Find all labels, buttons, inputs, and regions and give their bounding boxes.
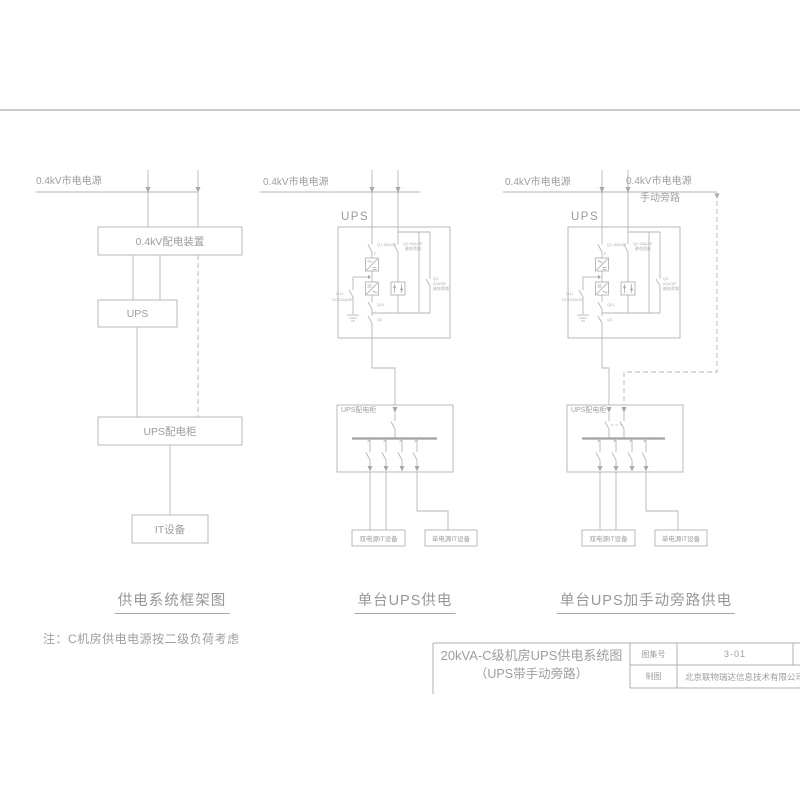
feeder-breakers [596,437,649,472]
breaker-q11-label: Q11 [566,292,573,296]
rectifier-icon [366,258,379,271]
breaker-blade-icon [349,290,353,297]
dual-power-it-label: 双电源IT设备 [582,530,635,546]
breaker-blade-icon [605,422,609,430]
arrow-down-icon [607,407,612,413]
dual-power-it-label: 双电源IT设备 [352,530,405,546]
fuse-f-label: F [374,252,376,256]
arrow-right-icon [598,275,601,279]
breaker-q4-label: Q4 [377,318,382,322]
arrow-down-icon [622,407,627,413]
note-text: 注：C机房供电电源按二级负荷考虑 [43,633,240,646]
breaker-q2-label2: 静态旁路 [405,247,421,251]
breaker-blade-icon [426,279,430,286]
breaker-blade-icon [368,245,372,253]
drawing-title-line2: （UPS带手动旁路） [433,663,630,682]
breaker-blade-icon [598,302,602,309]
ups-unit-title: UPS [571,211,599,223]
battery-icon [347,315,359,321]
distribution-device-label: 0.4kV配电装置 [98,227,242,255]
atlas-number-label: 图集号 [630,643,677,665]
breaker-blade-icon [368,302,372,309]
manual-bypass-dashed-line [624,193,717,405]
breaker-q11-label: Q11 [336,292,343,296]
manual-bypass-label: 手动旁路 [640,193,680,204]
breaker-blade-icon [368,316,372,323]
breaker-q4-label: Q4 [607,318,612,322]
breaker-q1-label: Q1 50A/3P [607,243,627,247]
left-diagram-lines [36,170,242,543]
battery-icon [577,315,589,321]
feeder-breakers [366,437,420,472]
mains-label: 0.4kV市电电源 [505,177,571,188]
atlas-number-value: 3-01 [677,643,793,665]
rectifier-icon [596,258,609,271]
drawing-linework [0,0,800,800]
breaker-q11-label2: DC125A/3P [332,298,353,302]
drawing-title-line1: 20kVA-C级机房UPS供电系统图 [433,645,630,664]
ups-cabinet-label: UPS配电柜 [98,417,242,445]
inverter-icon [596,282,609,295]
caption-right: 单台UPS加手动旁路供电 [557,589,735,614]
ups-label: UPS [98,300,177,327]
ups-unit-title: UPS [341,211,369,223]
single-power-it-label: 单电源IT设备 [425,530,477,546]
fuse-f-label: F [604,252,606,256]
breaker-q01-label: Q01 [607,303,615,307]
breaker-q11-label2: DC125A/3P [562,298,583,302]
drawn-by-company: 北京联物瑞达信息技术有限公司 [685,665,800,688]
static-switch-icon [621,282,635,295]
breaker-q01-label: Q01 [377,303,385,307]
caption-middle: 单台UPS供电 [355,589,456,614]
drawing-sheet: 0.4kV市电电源 0.4kV配电装置 UPS UPS配电柜 IT设备 供电系统… [0,0,800,800]
caption-left: 供电系统框架图 [115,589,230,614]
breaker-q3-label3: 维修旁路 [433,287,449,291]
single-power-it-label: 单电源IT设备 [655,530,707,546]
middle-diagram-lines [260,170,477,546]
ups-cabinet-label: UPS配电柜 [571,407,606,415]
breaker-blade-icon [656,279,660,286]
ups-cabinet-label: UPS配电柜 [341,407,376,415]
breaker-q3-label3: 维修旁路 [663,287,679,291]
static-switch-icon [391,282,405,295]
arrow-right-icon [368,275,371,279]
mains-bypass-label: 0.4kV市电电源 [626,176,692,187]
mains-label: 0.4kV市电电源 [263,177,329,188]
breaker-blade-icon [579,290,583,297]
breaker-blade-icon [598,316,602,323]
arrow-down-icon [393,407,398,413]
mains-label: 0.4kV市电电源 [36,176,102,187]
breaker-q2-label2: 静态旁路 [635,247,651,251]
breaker-blade-icon [598,245,602,253]
it-equipment-label: IT设备 [132,515,208,543]
drawn-by-label: 制图 [630,665,677,688]
breaker-blade-icon [391,422,395,430]
inverter-icon [366,282,379,295]
right-diagram-lines [503,170,720,546]
breaker-q1-label: Q1 50A/3P [377,243,397,247]
